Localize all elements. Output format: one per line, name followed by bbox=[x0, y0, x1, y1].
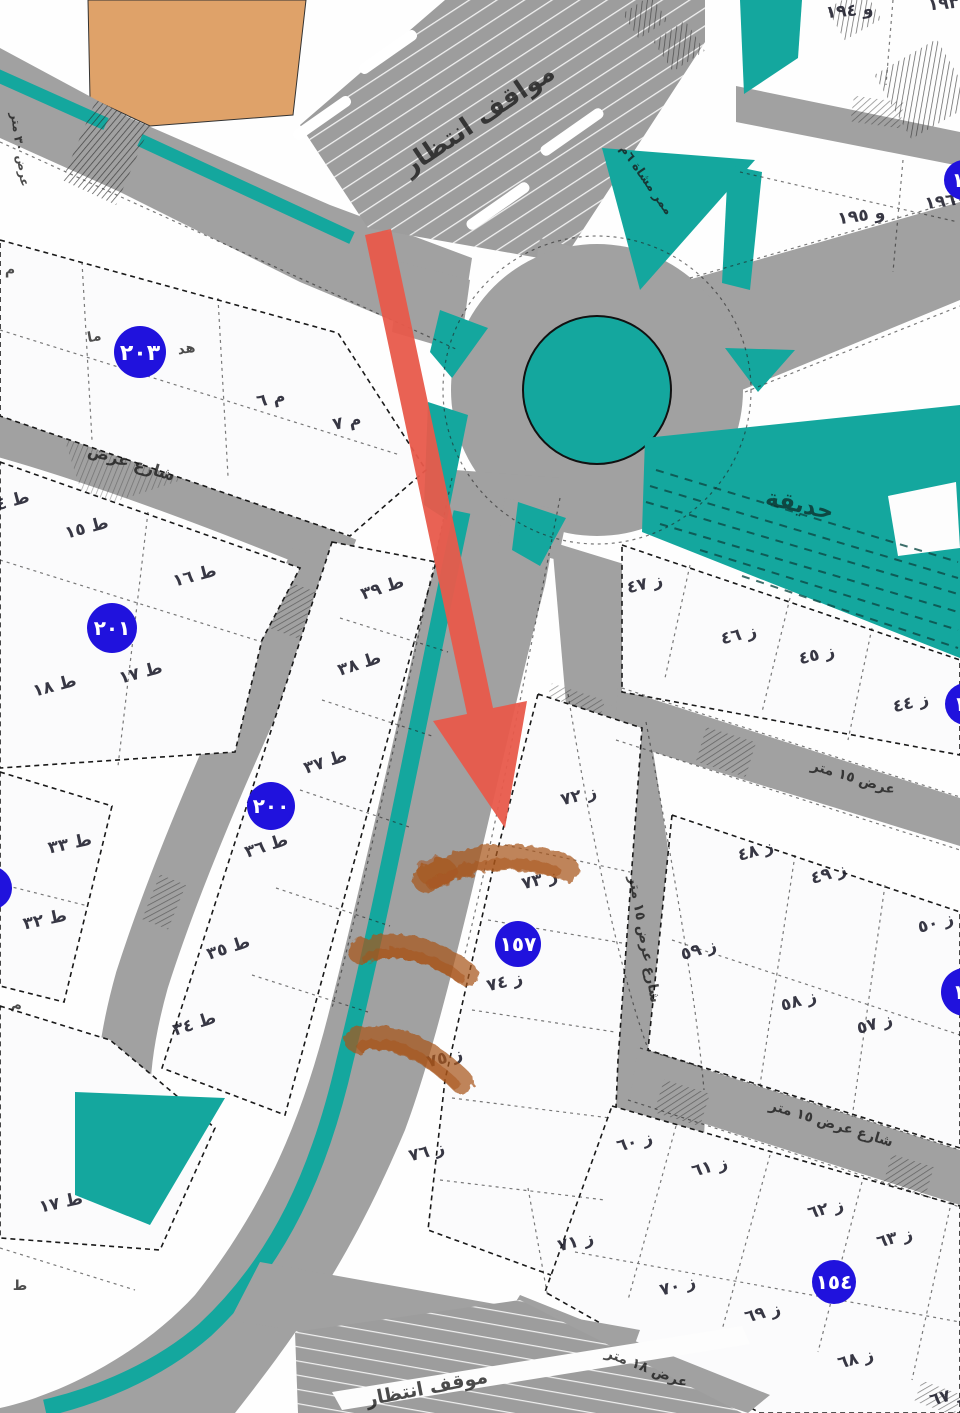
badge-200-label: ٢٠٠ bbox=[253, 794, 290, 818]
badge-157-label: ١٥٧ bbox=[500, 932, 537, 956]
cadastral-map: مواقف انتظار موقف انتظار حديقة شارع عرض … bbox=[0, 0, 960, 1413]
badge-203-label: ٢٠٣ bbox=[120, 341, 161, 366]
badge-right-upper-label: ١٥ bbox=[954, 692, 960, 716]
map-canvas: مواقف انتظار موقف انتظار حديقة شارع عرض … bbox=[0, 0, 960, 1413]
badge-154: ١٥٤ bbox=[812, 1260, 856, 1304]
fragment: ط bbox=[13, 1278, 28, 1294]
fragment: هد bbox=[176, 340, 196, 359]
badge-right-mid-label: ١٥ bbox=[953, 980, 960, 1004]
fragment: ما bbox=[86, 328, 103, 346]
building-block bbox=[88, 0, 306, 126]
badge-201: ٢٠١ bbox=[87, 603, 137, 653]
badge-157: ١٥٧ bbox=[495, 921, 541, 967]
badge-top-right-label: ١٩ bbox=[952, 168, 960, 192]
badge-200: ٢٠٠ bbox=[247, 782, 295, 830]
highlight-blob bbox=[417, 857, 457, 887]
plot-label: ١٩٣ bbox=[927, 0, 960, 15]
badge-154-label: ١٥٤ bbox=[816, 1270, 853, 1294]
badge-203: ٢٠٣ bbox=[114, 326, 166, 378]
badge-201-label: ٢٠١ bbox=[94, 616, 131, 640]
fragment: م bbox=[5, 262, 15, 278]
